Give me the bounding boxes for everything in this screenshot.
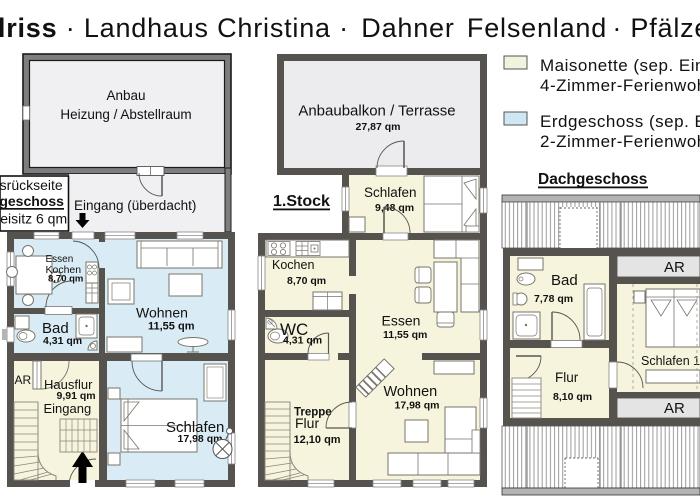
svg-text:Freisitz 6 qm: Freisitz 6 qm — [0, 211, 67, 227]
svg-text:AR: AR — [664, 400, 685, 417]
svg-text:Grundriss · Landhaus Christina: Grundriss · Landhaus Christina · Dahner … — [0, 13, 700, 43]
svg-text:Hausrückseite: Hausrückseite — [0, 177, 63, 193]
svg-text:Maisonette (sep. Eingang): Maisonette (sep. Eingang) — [540, 56, 700, 75]
svg-text:Schlafen 13,75 qm: Schlafen 13,75 qm — [641, 354, 700, 368]
svg-text:AR: AR — [15, 373, 32, 387]
svg-text:27,87 qm: 27,87 qm — [356, 121, 401, 133]
svg-text:17,98 qm: 17,98 qm — [395, 400, 440, 412]
svg-text:12,10 qm: 12,10 qm — [294, 434, 341, 446]
svg-text:4,31 qm: 4,31 qm — [43, 335, 82, 347]
svg-text:Anbaubalkon / Terrasse: Anbaubalkon / Terrasse — [298, 103, 455, 120]
svg-text:Wohnen: Wohnen — [136, 305, 188, 321]
svg-text:Eingang: Eingang — [44, 401, 92, 416]
svg-text:1.Stock: 1.Stock — [273, 193, 330, 210]
svg-text:Flur: Flur — [555, 370, 579, 385]
svg-text:Essen: Essen — [382, 313, 421, 329]
svg-text:8,70 qm: 8,70 qm — [287, 275, 326, 287]
svg-text:Wohnen: Wohnen — [384, 384, 438, 400]
svg-text:Anbau: Anbau — [106, 88, 145, 103]
svg-text:Eingang (überdacht): Eingang (überdacht) — [74, 198, 196, 213]
svg-text:7,78 qm: 7,78 qm — [534, 293, 573, 305]
svg-text:Bad: Bad — [551, 272, 578, 289]
svg-text:9,48 qm: 9,48 qm — [375, 202, 414, 214]
svg-text:AR: AR — [664, 259, 685, 276]
svg-text:Dachgeschoss: Dachgeschoss — [538, 171, 647, 188]
svg-text:2-Zimmer-Ferienwohnung: 2-Zimmer-Ferienwohnung — [540, 132, 700, 151]
svg-text:Schlafen: Schlafen — [364, 185, 417, 200]
svg-text:8,70 qm: 8,70 qm — [48, 274, 83, 285]
svg-text:Erdgeschoss (sep. Eingang): Erdgeschoss (sep. Eingang) — [540, 112, 700, 131]
svg-text:11,55 qm: 11,55 qm — [148, 321, 195, 333]
svg-text:Erdgeschoss: Erdgeschoss — [0, 193, 64, 209]
svg-text:Heizung / Abstellraum: Heizung / Abstellraum — [60, 107, 191, 122]
svg-text:4-Zimmer-Ferienwohnung: 4-Zimmer-Ferienwohnung — [540, 76, 700, 95]
svg-text:11,55 qm: 11,55 qm — [383, 329, 427, 341]
svg-text:8,10 qm: 8,10 qm — [553, 391, 592, 403]
svg-text:4,31 qm: 4,31 qm — [283, 335, 322, 347]
svg-text:Kochen: Kochen — [272, 258, 314, 272]
svg-text:Flur: Flur — [295, 415, 319, 431]
